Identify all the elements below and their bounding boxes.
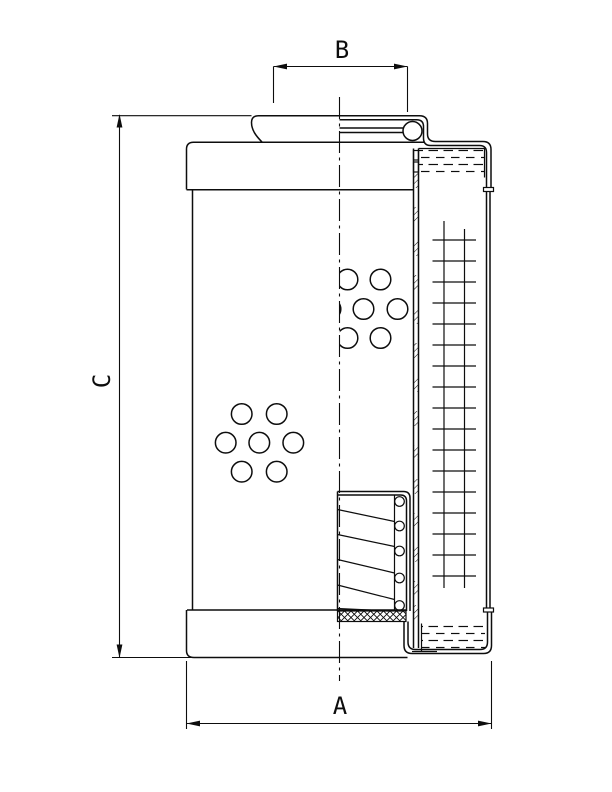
dim-label-b: B (335, 36, 349, 64)
technical-drawing-canvas: B C A (0, 0, 612, 792)
top-end-cap-bond (419, 149, 485, 178)
dim-label-a: A (333, 692, 348, 720)
dim-label-c: C (88, 374, 116, 388)
gasket-strip (338, 611, 407, 622)
drawing-page: B C A (0, 0, 612, 792)
bottom-end-cap-bond (422, 624, 486, 652)
paper-background (0, 0, 612, 792)
